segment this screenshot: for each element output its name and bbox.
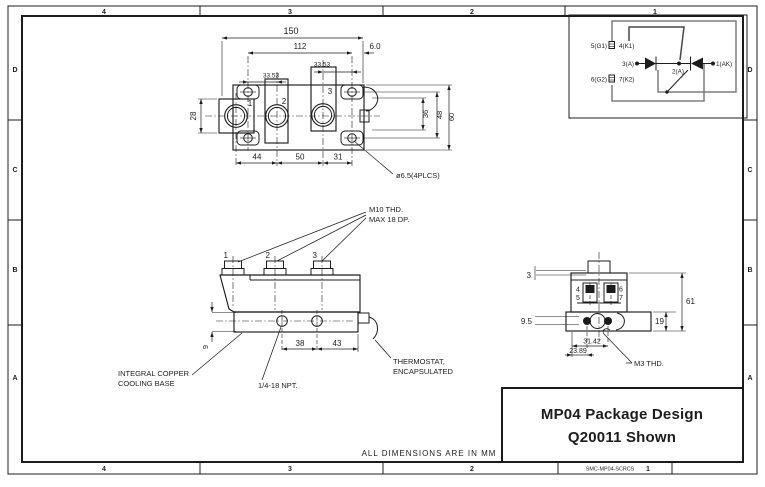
dim-6-0: 6.0 [369,42,381,51]
dim-38: 38 [296,339,305,348]
end-terminal-4: 4 [576,287,580,294]
dim-36: 36 [421,110,430,118]
terminal-label-3: 3 [328,87,333,96]
circuit-term-4k1: 4(K1) [619,43,634,50]
title-block: MP04 Package Design Q20011 Shown SMC-MP0… [502,388,743,474]
end-terminal-6: 6 [619,287,623,294]
dim-43: 43 [333,339,342,348]
drawing-canvas: 4 3 2 1 4 3 2 D C B A D C B A [0,0,765,482]
circuit-term-5g1: 5(G1) [591,43,607,50]
dim-9-5: 9.5 [521,317,533,326]
dim-48: 48 [435,111,444,119]
zone-left-c: C [12,167,17,174]
circuit-term-2a: 2(A) [672,69,684,76]
dim-33-53-b: 33.53 [314,62,331,69]
title-block-title: MP04 Package Design [541,406,703,423]
zone-right-c: C [747,167,752,174]
title-block-subtitle: Q20011 Shown [568,429,676,446]
zone-right-b: B [747,267,752,274]
dim-31-42: 31.42 [583,339,601,346]
end-view: 4 5 6 7 3 61 19 9.5 31.42 [521,252,696,368]
circuit-term-6g2: 6(G2) [591,77,607,84]
base-callout-line2: COOLING BASE [118,379,175,388]
terminal-label-1: 1 [248,99,253,108]
zone-left-a: A [12,375,17,382]
dim-19: 19 [655,317,664,326]
zone-bottom-3: 3 [288,466,292,473]
hole-callout: ø6.5(4PLCS) [396,171,440,180]
dim-31: 31 [334,153,343,162]
m3-thread-callout: M3 THD. [634,359,664,368]
dim-61: 61 [686,297,695,306]
bolt-label-2: 2 [266,251,271,260]
title-block-code: SMC-MP04-SCRCS [586,467,635,473]
top-view: 150 112 6.0 33.53 33.53 28 36 48 60 [189,26,456,180]
circuit-term-1ak: 1(AK) [716,61,732,68]
dim-23-89: 23.89 [569,348,587,355]
base-callout-line1: INTEGRAL COPPER [118,369,190,378]
drawing-sheet: 4 3 2 1 4 3 2 D C B A D C B A [0,0,765,482]
zone-bottom-2: 2 [470,466,474,473]
dim-150: 150 [283,26,298,36]
zone-bottom-4: 4 [102,466,106,473]
circuit-term-3a: 3(A) [622,61,634,68]
bolt-label-3: 3 [313,251,318,260]
end-terminal-7: 7 [619,295,623,302]
dim-112: 112 [294,42,307,51]
title-block-sheet: 1 [646,466,650,473]
npt-callout: 1/4-18 NPT. [258,381,298,390]
thread-callout-line2: MAX 18 DP. [369,215,409,224]
dim-60: 60 [447,113,456,121]
circuit-diagram: 5(G1) 4(K1) 3(A) 2(A) 1(AK) 6(G2) 7(K2) [569,15,747,118]
dim-44: 44 [253,153,262,162]
side-view: 1 2 3 M10 THD. MAX 18 DP. 9 38 43 [118,205,453,390]
thread-callout-line1: M10 THD. [369,205,403,214]
zone-top-2: 2 [470,9,474,16]
end-terminal-5: 5 [576,295,580,302]
zone-top-4: 4 [102,9,106,16]
dim-3: 3 [527,271,532,280]
dim-9: 9 [201,345,210,349]
zone-left-d: D [12,67,17,74]
circuit-term-7k2: 7(K2) [619,77,634,84]
zone-right-a: A [747,375,752,382]
terminal-label-2: 2 [282,97,287,106]
dim-50: 50 [296,153,305,162]
bolt-label-1: 1 [224,251,229,260]
units-note: ALL DIMENSIONS ARE IN MM [362,449,497,458]
zone-right-d: D [747,67,752,74]
zone-left-b: B [12,267,17,274]
sheet-border: 4 3 2 1 4 3 2 D C B A D C B A [8,6,757,474]
thermostat-callout-line2: ENCAPSULATED [393,367,453,376]
thermostat-callout-line1: THERMOSTAT, [393,357,445,366]
dim-33-53-a: 33.53 [263,73,280,80]
dim-28: 28 [189,111,198,120]
zone-top-3: 3 [288,9,292,16]
